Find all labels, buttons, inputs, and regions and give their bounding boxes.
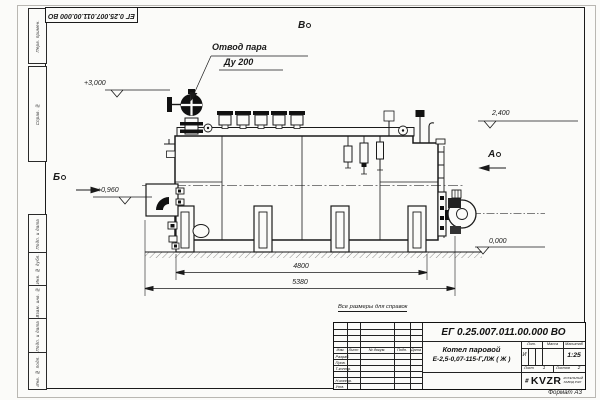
- product-name-line1: Котел паровой: [422, 346, 521, 354]
- elevation-plus0960: +0,960: [97, 187, 119, 194]
- logo-text: KVZR: [531, 375, 562, 387]
- row-utv: Утв.: [336, 385, 345, 389]
- view-marker-b: Б: [53, 173, 66, 183]
- listov-label: Листов: [556, 367, 570, 371]
- col-izm: Изм.: [334, 349, 347, 353]
- titleblock-line: [360, 323, 361, 389]
- callout-steam-outlet: Отвод пара: [212, 43, 267, 52]
- titleblock-line: [334, 383, 422, 384]
- title-block: ЕГ 0.25.007.011.00.000 ВО Изм. Лист № до…: [333, 322, 586, 390]
- titleblock-line: [334, 335, 422, 336]
- callout-du200: Ду 200: [224, 58, 253, 67]
- massa-header: Масса: [542, 343, 563, 347]
- titleblock-doc-number: ЕГ 0.25.007.011.00.000 ВО: [422, 328, 585, 338]
- view-marker-a: А: [488, 150, 501, 160]
- ground-line: [145, 252, 482, 258]
- view-marker-v-label: В: [298, 20, 305, 31]
- steam-valve: [167, 89, 203, 134]
- view-marker-suffix: [496, 152, 501, 157]
- titleblock-line: [334, 359, 422, 360]
- dimension-4800: 4800: [281, 263, 321, 270]
- level-gauges: [344, 136, 384, 174]
- titleblock-line: [528, 348, 529, 365]
- logo-subtitle: КОТЕЛЬНЫЙ ЗАВОД РЭП: [564, 377, 583, 385]
- row-tkontr: Т.контр.: [336, 367, 352, 371]
- list-label: Лист: [524, 367, 534, 371]
- col-list: Лист: [347, 349, 360, 353]
- reference-note-text: Все размеры для справок: [338, 304, 407, 312]
- format-note: Формат А3: [520, 390, 582, 396]
- col-ndokum: № докум.: [360, 349, 394, 353]
- row-razrab: Разраб.: [336, 355, 350, 359]
- titleblock-line: [422, 341, 585, 342]
- dimension-5380: 5380: [280, 279, 320, 286]
- logo-stripes-icon: [525, 375, 529, 386]
- elevation-0000: 0,000: [489, 238, 507, 245]
- titleblock-line: [521, 348, 585, 349]
- titleblock-line: [410, 323, 411, 389]
- lit-value: И: [521, 353, 528, 359]
- reference-note: Все размеры для справок: [338, 305, 407, 311]
- top-nozzles: [217, 111, 305, 129]
- titleblock-line: [334, 371, 422, 372]
- titleblock-line: [422, 372, 585, 373]
- left-fan-box: [146, 139, 184, 216]
- titleblock-line: [334, 341, 422, 342]
- company-logo: KVZR КОТЕЛЬНЫЙ ЗАВОД РЭП: [525, 374, 583, 387]
- col-podp: Подп.: [394, 349, 410, 353]
- burner: [438, 190, 476, 236]
- elevation-2400: 2,400: [492, 110, 510, 117]
- drawing-sheet: Перв. примен. Справ. № Подп. и дата Инв.…: [0, 0, 600, 400]
- product-name-line2: Е-2,5-0,07-115-Г,ЛЖ ( Ж ): [422, 357, 521, 364]
- elevation-plus3000: +3,000: [84, 80, 106, 87]
- masshtab-header: Масштаб: [563, 343, 585, 347]
- view-marker-a-label: А: [488, 149, 495, 160]
- boiler-body: [175, 128, 438, 241]
- logo-subtitle-line2: ЗАВОД РЭП: [564, 380, 582, 384]
- view-marker-suffix: [61, 175, 66, 180]
- row-prov: Пров.: [336, 361, 346, 365]
- lit-header: Лит.: [521, 343, 542, 347]
- titleblock-line: [535, 348, 536, 365]
- view-marker-b-label: Б: [53, 172, 60, 183]
- titleblock-line: [394, 323, 395, 389]
- masshtab-value: 1:25: [563, 353, 585, 360]
- view-arrows: [76, 165, 506, 192]
- listov-value: 2: [575, 366, 583, 371]
- col-data: Дата: [410, 349, 422, 353]
- view-marker-v: В: [298, 21, 311, 31]
- support-legs: [176, 206, 426, 252]
- row-nkontr: Н.контр.: [336, 379, 352, 383]
- titleblock-line: [553, 365, 554, 372]
- list-value: 1: [539, 366, 549, 371]
- view-marker-suffix: [306, 23, 311, 28]
- titleblock-line: [334, 329, 422, 330]
